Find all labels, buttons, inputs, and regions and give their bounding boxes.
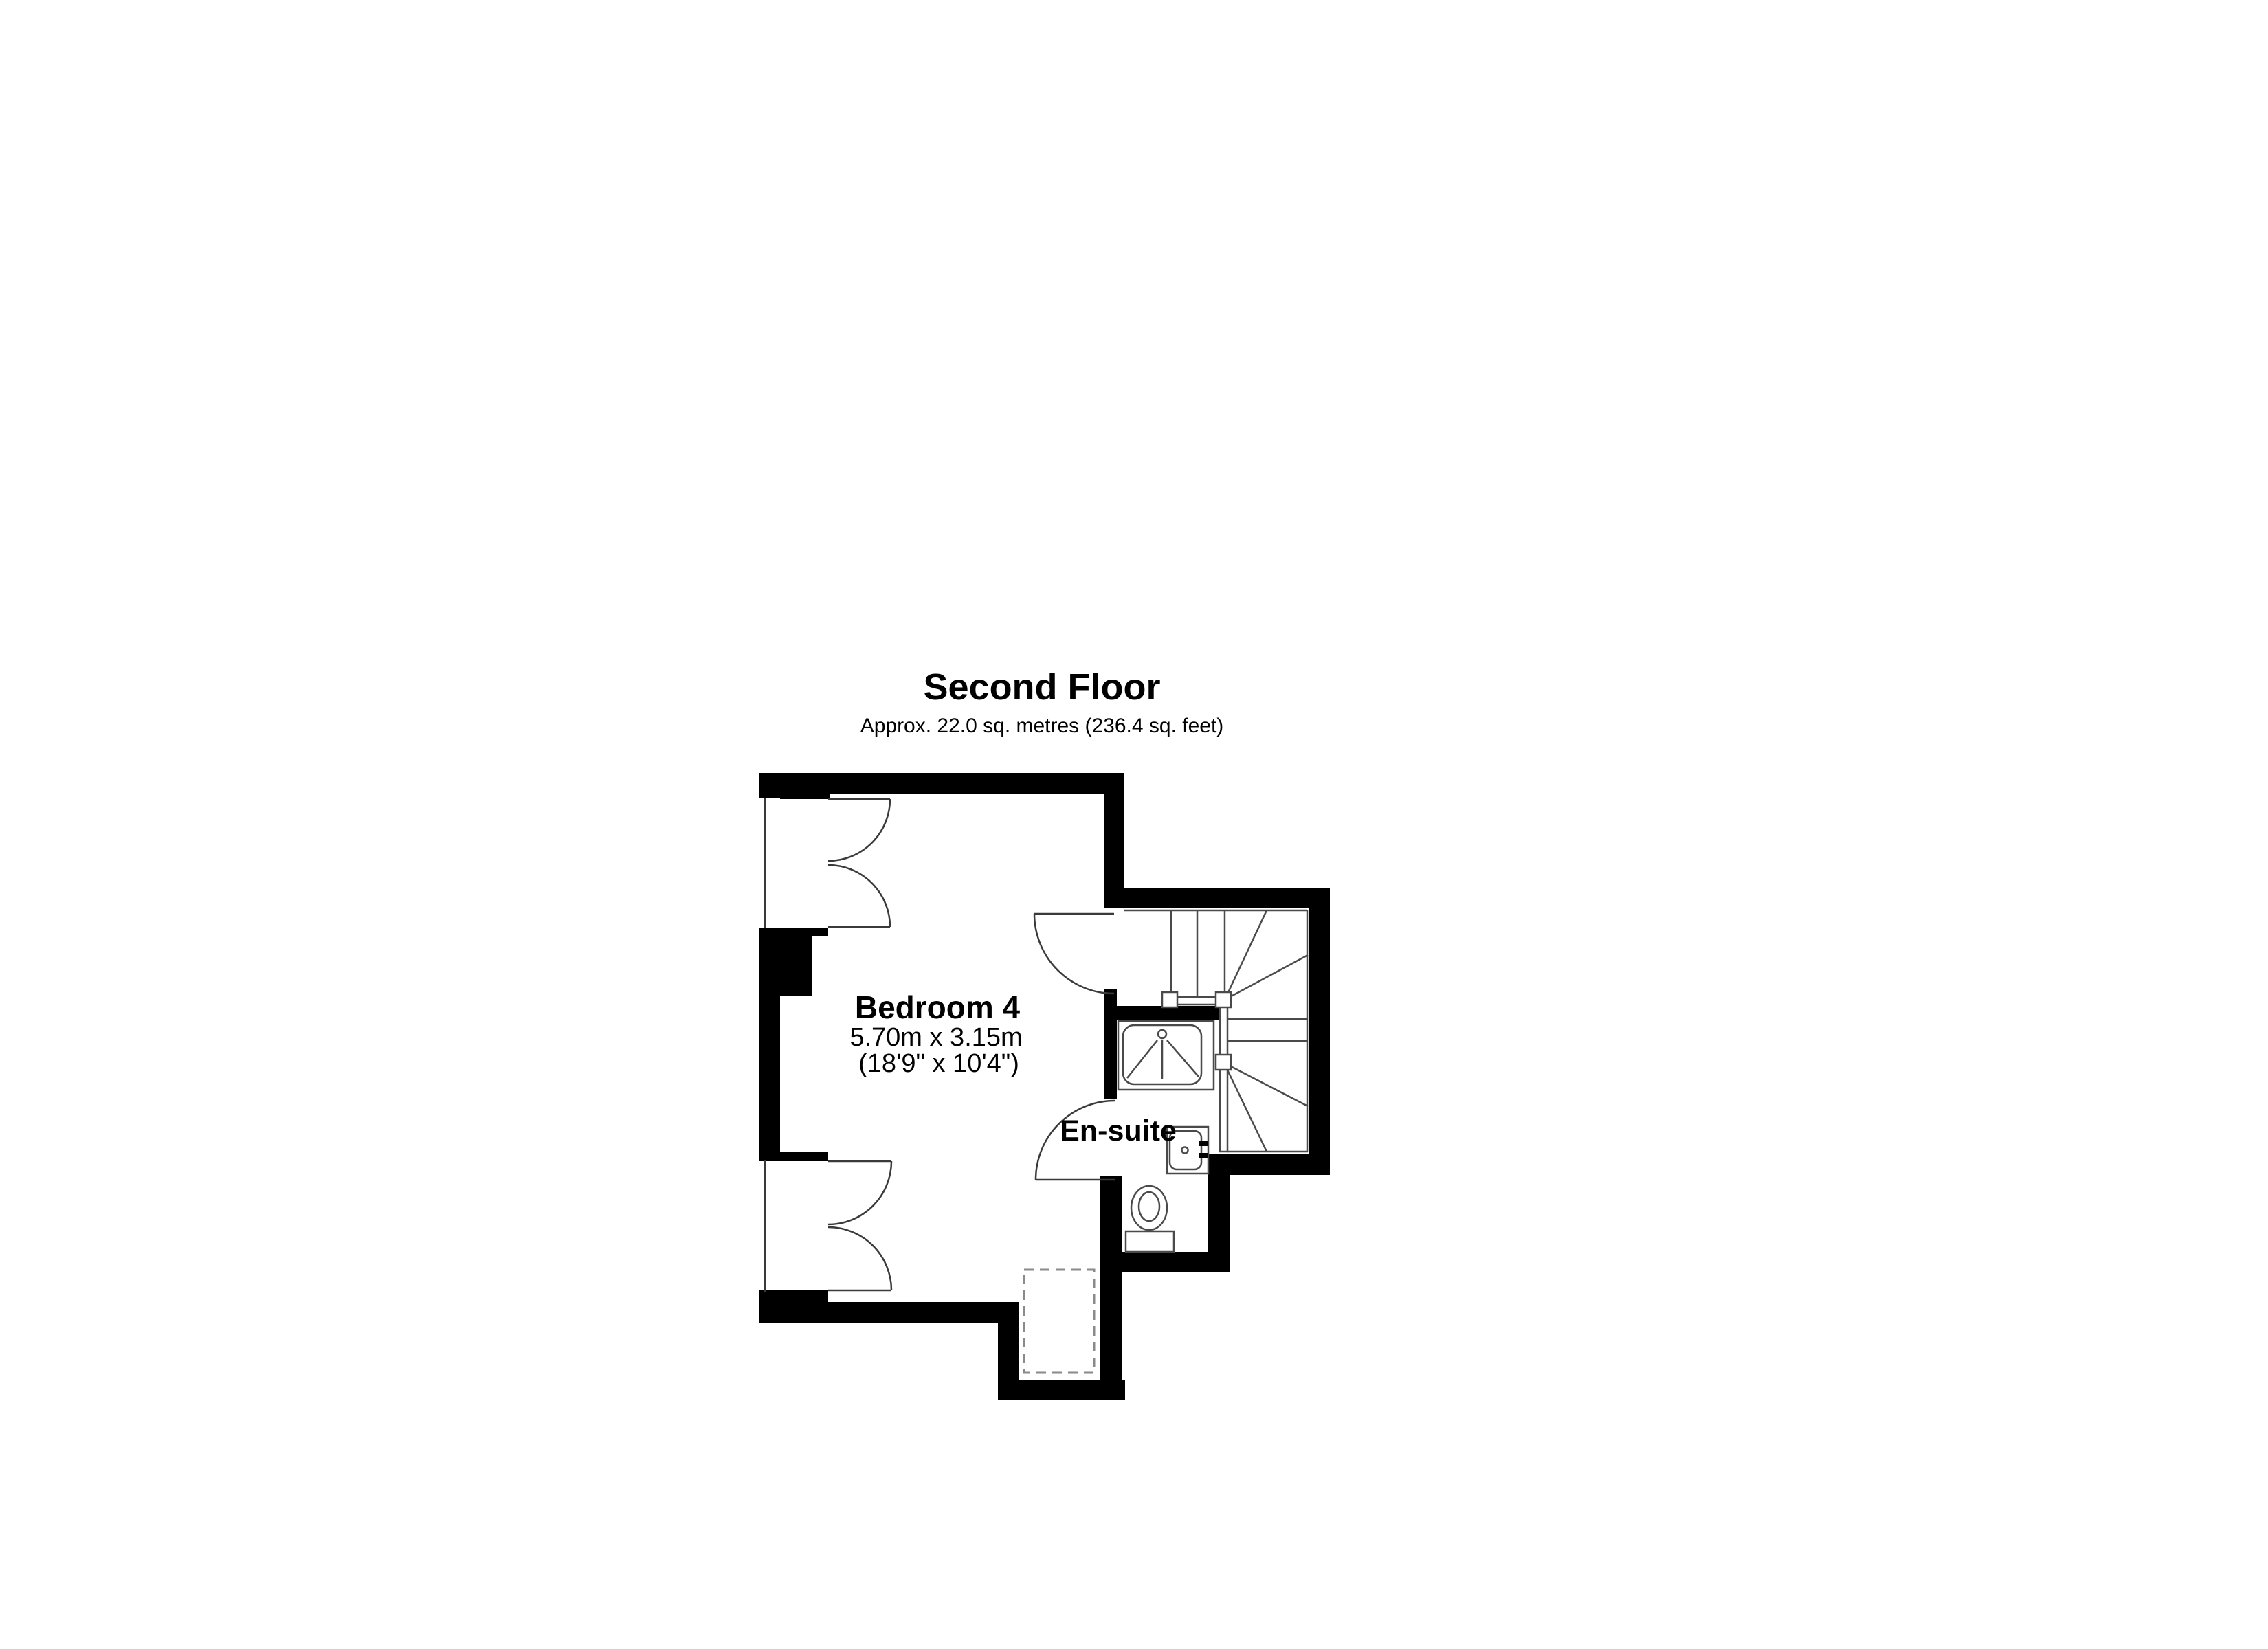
shower-icon <box>1118 1021 1214 1090</box>
floor-plan-page: Second Floor Approx. 22.0 sq. metres (23… <box>0 0 2268 1649</box>
stair-newel-post <box>1162 992 1177 1007</box>
window-swing-arc <box>828 865 890 927</box>
stair-winder-tread <box>1224 1063 1267 1152</box>
shower-spray-line <box>1127 1040 1157 1078</box>
stair-winder-tread <box>1225 955 1308 1000</box>
door-bedroom <box>1034 914 1114 994</box>
stair-winder-tread <box>1225 910 1267 1000</box>
restricted-headroom-outline <box>1024 1270 1094 1373</box>
window-swing-arc <box>828 1161 891 1224</box>
ensuite-label: En-suite <box>1060 1114 1177 1147</box>
bedroom4-label: Bedroom 4 <box>855 989 1021 1025</box>
window-swing-arc <box>828 799 890 861</box>
sink-tap <box>1199 1141 1208 1146</box>
shower-head <box>1158 1030 1166 1038</box>
window-lower <box>765 1160 891 1292</box>
door-swing-arc <box>1034 914 1114 994</box>
sink-tap <box>1199 1153 1208 1158</box>
floor-plan-canvas: Second Floor Approx. 22.0 sq. metres (23… <box>0 0 2268 1649</box>
stair-handrail-side <box>1220 1005 1227 1057</box>
toilet-seat <box>1139 1192 1159 1221</box>
window-upper <box>765 798 890 928</box>
page-title: Second Floor <box>923 666 1160 708</box>
window-swing-arc <box>828 1227 891 1290</box>
wall-connector <box>1104 773 1124 908</box>
wall-stairs-right <box>1309 888 1330 1175</box>
wall-ensuite-left <box>1100 1176 1122 1400</box>
page-area-note: Approx. 22.0 sq. metres (236.4 sq. feet) <box>860 715 1224 737</box>
stair-newel-post <box>1216 1055 1231 1070</box>
toilet-icon <box>1126 1186 1174 1252</box>
wall-window2-bottom-stub <box>780 1290 828 1303</box>
stair-newel-post <box>1216 992 1231 1007</box>
stair-winder-tread <box>1224 1063 1308 1106</box>
bedroom4-size-metric: 5.70m x 3.15m <box>849 1023 1022 1052</box>
toilet-cistern <box>1126 1231 1174 1252</box>
wall-window2-top-stub <box>780 1152 828 1161</box>
wall-pier <box>759 928 812 996</box>
stair-flight-edge <box>1220 1069 1227 1152</box>
wall-bottom <box>759 1302 1019 1323</box>
sink-drain <box>1182 1147 1188 1154</box>
wall-left-upper <box>759 773 780 798</box>
wall-stairs-top <box>1104 888 1330 908</box>
shower-spray-line <box>1167 1040 1199 1077</box>
bedroom4-size-imperial: (18'9" x 10'4") <box>858 1049 1019 1078</box>
wall-window1-top-stub <box>780 783 830 799</box>
